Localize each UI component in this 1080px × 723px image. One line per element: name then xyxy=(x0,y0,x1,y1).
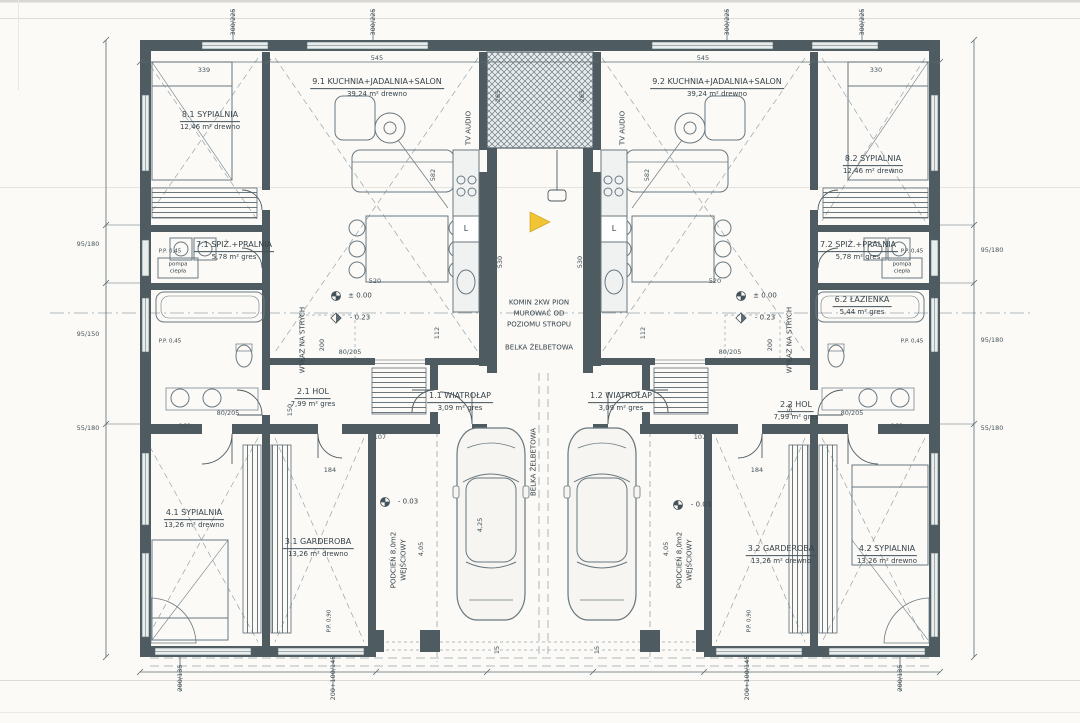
dim-184: 184 xyxy=(751,466,763,474)
dim-door-80-205: 80/205 xyxy=(841,409,864,417)
dim-shaft-width: 265 xyxy=(578,90,586,102)
room-label-8-2: 8.2 SYPIALNIA 12,46 m² drewno xyxy=(843,154,903,176)
room-label-8-1: 8.1 SYPIALNIA 12,46 m² drewno xyxy=(180,110,240,132)
level-023-right: - 0.23 xyxy=(755,314,775,323)
dim-200: 200 xyxy=(318,339,326,351)
room-label-7-1: 7.1 SPIŻ.+PRALNIA 5,78 m² gres xyxy=(194,240,274,262)
attic-hatch-note-left: WYŁAZ NA STRYCH xyxy=(299,307,308,373)
room-label-1-1: 1.1 WIATROŁAP 3,09 m² gres xyxy=(427,391,493,413)
tv-audio-note-left: TV AUDIO xyxy=(465,111,474,145)
level-023-left: - 0.23 xyxy=(350,314,370,323)
dim-shaft-length: 530 xyxy=(496,256,504,268)
room-label-3-2: 3.2 GARDEROBA 13,26 m² drewno xyxy=(746,544,817,566)
dim-15: 15 xyxy=(593,646,601,654)
fridge-mark-left: L xyxy=(464,224,468,234)
dim-bottom-window: 200+100/145 xyxy=(743,656,751,701)
dim-bottom-window: 200/135 xyxy=(896,664,904,691)
dim-edge-window: 95/180 xyxy=(77,240,100,248)
floor-plan-scan: 9.1 KUCHNIA+JADALNIA+SALON 39,24 m² drew… xyxy=(0,0,1080,723)
dim-window-flag: 300/225 xyxy=(229,8,237,35)
dim-107: 107 xyxy=(694,433,706,441)
level-zero-left: ± 0.00 xyxy=(348,292,372,301)
room-label-4-1: 4.1 SYPIALNIA 13,26 m² drewno xyxy=(164,508,224,530)
room-label-4-2: 4.2 SYPIALNIA 13,26 m² drewno xyxy=(857,544,917,566)
sill-090: P.P. 0,90 xyxy=(747,610,754,632)
dim-window-flag: 300/225 xyxy=(858,8,866,35)
tv-audio-note-right: TV AUDIO xyxy=(619,111,628,145)
dim-bottom-window: 200+100/145 xyxy=(329,656,337,701)
fridge-mark-right: L xyxy=(612,224,616,234)
sill-045: P.P. 0,45 xyxy=(901,249,923,256)
dim-15: 15 xyxy=(493,646,501,654)
level-003-right: - 0.03 xyxy=(691,501,711,510)
dim-door-80-205: 80/205 xyxy=(217,409,240,417)
sill-045: P.P. 0,45 xyxy=(159,249,181,256)
dim-112: 112 xyxy=(433,327,441,339)
car-length-dim: 4,25 xyxy=(476,518,484,532)
dim-edge-window: 95/150 xyxy=(77,330,100,338)
dim-top-545-right: 545 xyxy=(697,54,709,62)
room-label-7-2: 7.2 SPIŻ.+PRALNIA 5,78 m² gres xyxy=(818,240,898,262)
dim-top-339: 339 xyxy=(198,66,210,74)
dim-top-545-left: 545 xyxy=(371,54,383,62)
dim-door-80-205: 80/205 xyxy=(719,348,742,356)
dim-window-flag: 300/225 xyxy=(369,8,377,35)
dim-200: 200 xyxy=(766,339,774,351)
dim-520: 520 xyxy=(709,277,721,285)
dim-150: 150 xyxy=(786,404,794,416)
heat-pump-label-left: pompa ciepła xyxy=(168,261,187,274)
dim-salon-depth: 582 xyxy=(643,169,651,181)
room-label-2-1: 2.1 HOL 7,99 m² gres xyxy=(291,387,336,409)
dim-door-80-205: 80/205 xyxy=(339,348,362,356)
dim-520: 520 xyxy=(369,277,381,285)
dim-162: 162 xyxy=(179,422,191,430)
dim-edge-window: 55/180 xyxy=(981,424,1004,432)
heat-pump-label-right: pompa ciepła xyxy=(892,261,911,274)
dim-window-flag: 300/225 xyxy=(723,8,731,35)
beam-note: BELKA ŻELBETOWA xyxy=(505,344,573,353)
dim-top-330: 330 xyxy=(870,66,882,74)
dim-107: 107 xyxy=(374,433,386,441)
dim-112: 112 xyxy=(639,327,647,339)
dim-150: 150 xyxy=(286,404,294,416)
room-label-9-1: 9.1 KUCHNIA+JADALNIA+SALON 39,24 m² drew… xyxy=(310,77,444,99)
porch-label-right: PODCIEŃ 8,0m2 WEJŚCIOWY xyxy=(674,532,694,588)
beam-note-vertical: BELKA ŻELBETOWA xyxy=(530,428,539,496)
room-label-1-2: 1.2 WIATROŁAP 3,09 m² gres xyxy=(588,391,654,413)
room-label-9-2: 9.2 KUCHNIA+JADALNIA+SALON 39,24 m² drew… xyxy=(650,77,784,99)
sill-045: P.P. 0,45 xyxy=(159,339,181,346)
room-label-6-2: 6.2 ŁAZIENKA 5,44 m² gres xyxy=(833,295,892,317)
attic-hatch-note-right: WYŁAZ NA STRYCH xyxy=(786,307,795,373)
dim-salon-depth: 582 xyxy=(429,169,437,181)
sill-090: P.P. 0,90 xyxy=(327,610,334,632)
dim-bottom-window: 200/135 xyxy=(176,664,184,691)
dim-shaft-length: 530 xyxy=(576,256,584,268)
text-labels: 9.1 KUCHNIA+JADALNIA+SALON 39,24 m² drew… xyxy=(0,0,1080,723)
room-label-2-2: 2.2 HOL 7,99 m² gres xyxy=(774,400,819,422)
level-003-left: - 0.03 xyxy=(398,498,418,507)
porch-label-left: PODCIEŃ 8,0m2 WEJŚCIOWY xyxy=(388,532,408,588)
level-zero-right: ± 0.00 xyxy=(753,292,777,301)
dim-184: 184 xyxy=(324,466,336,474)
porch-width-dim-right: 4,05 xyxy=(662,542,670,556)
chimney-note: KOMIN 2KW PION MUROWAĆ OD POZIOMU STROPU xyxy=(507,298,571,331)
dim-edge-window: 95/180 xyxy=(981,336,1004,344)
porch-width-dim-left: 4,05 xyxy=(417,542,425,556)
dim-edge-window: 95/180 xyxy=(981,246,1004,254)
dim-edge-window: 55/180 xyxy=(77,424,100,432)
dim-shaft-width: 265 xyxy=(494,90,502,102)
room-label-3-1: 3.1 GARDEROBA 13,26 m² drewno xyxy=(283,537,354,559)
sill-045: P.P. 0,45 xyxy=(901,339,923,346)
dim-162: 162 xyxy=(891,422,903,430)
